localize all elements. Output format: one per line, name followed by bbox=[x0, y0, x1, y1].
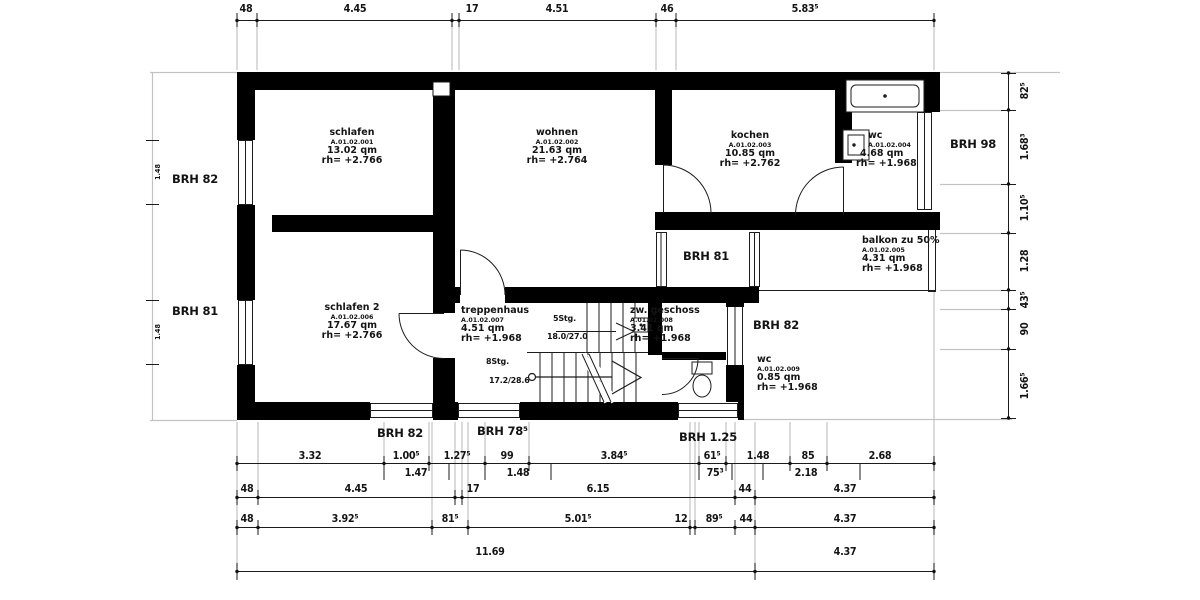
dim-label: 1.48 bbox=[154, 324, 162, 340]
dim-label: 1.48 bbox=[507, 467, 530, 479]
dim-label: 1.68³ bbox=[1019, 134, 1031, 161]
room-label-wc-top: wcA.01.02.004 4.68 qm rh= +1.968 bbox=[868, 131, 917, 170]
dim-label: 82⁵ bbox=[1019, 83, 1031, 100]
dim-label: 48 bbox=[241, 513, 254, 525]
dim-label: 75³ bbox=[707, 467, 724, 479]
stair-ratio-upper: 18.0/27.0 bbox=[547, 332, 588, 341]
dim-label: 90 bbox=[1019, 323, 1031, 336]
room-label-schlafen: schlafenA.01.02.001 13.02 qmrh= +2.766 bbox=[322, 128, 383, 167]
dim-label: 1.47 bbox=[405, 467, 428, 479]
dim-label: 61⁵ bbox=[704, 450, 721, 462]
dim-label: 89⁵ bbox=[706, 513, 723, 525]
dim-label: 17 bbox=[467, 483, 480, 495]
dim-label: 11.69 bbox=[475, 546, 504, 558]
room-label-treppenhaus: treppenhausA.01.02.007 4.51 qmrh= +1.968 bbox=[461, 306, 529, 345]
room-label-wohnen: wohnenA.01.02.002 21.63 qmrh= +2.764 bbox=[527, 128, 588, 167]
dim-label: 4.37 bbox=[834, 513, 857, 525]
dim-label: 4.37 bbox=[834, 546, 857, 558]
dim-label: 5.83⁵ bbox=[792, 3, 819, 15]
dim-label: 85 bbox=[802, 450, 815, 462]
room-label-balkon: balkon zu 50%A.01.02.005 4.31 qmrh= +1.9… bbox=[862, 236, 939, 275]
sill-label-mid-right: BRH 82 bbox=[753, 318, 799, 332]
dim-label: 4.37 bbox=[834, 483, 857, 495]
dim-label: 44 bbox=[739, 483, 752, 495]
stair-steps-lower: 8Stg. bbox=[486, 357, 509, 366]
sill-label-right: BRH 98 bbox=[950, 137, 996, 151]
dim-label: 17 bbox=[466, 3, 479, 15]
dim-label: 43⁵ bbox=[1019, 292, 1031, 309]
dim-label: 12 bbox=[675, 513, 688, 525]
sill-label-left-top: BRH 82 bbox=[172, 172, 218, 186]
sill-label-bottom-left: BRH 82 bbox=[377, 426, 423, 440]
room-label-wc-bottom: wcA.01.02.009 0.85 qmrh= +1.968 bbox=[757, 355, 818, 394]
sill-label-bottom-right: BRH 1.25 bbox=[679, 430, 737, 444]
stair-steps-upper: 5Stg. bbox=[553, 314, 576, 323]
dim-label: 1.48 bbox=[747, 450, 770, 462]
dim-label: 99 bbox=[501, 450, 514, 462]
dim-label: 48 bbox=[240, 3, 253, 15]
dim-label: 1.28 bbox=[1019, 250, 1031, 273]
dim-label: 1.00⁵ bbox=[393, 450, 420, 462]
stair-break-line bbox=[582, 354, 614, 402]
dim-label: 1.27⁵ bbox=[444, 450, 471, 462]
dim-label: 6.15 bbox=[587, 483, 610, 495]
dim-label: 46 bbox=[661, 3, 674, 15]
dim-label: 4.51 bbox=[546, 3, 569, 15]
room-label-kochen: kochenA.01.02.003 10.85 qmrh= +2.762 bbox=[720, 131, 781, 170]
stair-ratio-lower: 17.2/28.6 bbox=[489, 376, 530, 385]
dim-label: 5.01⁵ bbox=[565, 513, 592, 525]
dim-label: 3.92⁵ bbox=[332, 513, 359, 525]
dim-label: 1.48 bbox=[154, 164, 162, 180]
dim-label: 3.32 bbox=[299, 450, 322, 462]
sill-label-left-bottom: BRH 81 bbox=[172, 304, 218, 318]
sill-label-corridor: BRH 81 bbox=[683, 249, 729, 263]
dim-label: 44 bbox=[740, 513, 753, 525]
dim-label: 1.10⁵ bbox=[1019, 195, 1031, 222]
dim-label: 81⁵ bbox=[442, 513, 459, 525]
dim-label: 3.84⁵ bbox=[601, 450, 628, 462]
dim-label: 2.18 bbox=[795, 467, 818, 479]
dim-label: 1.66⁵ bbox=[1019, 373, 1031, 400]
dim-label: 4.45 bbox=[345, 483, 368, 495]
sill-label-bottom-mid: BRH 78⁵ bbox=[477, 424, 528, 438]
dim-label: 48 bbox=[241, 483, 254, 495]
chimney-symbol bbox=[433, 82, 450, 96]
toilet-icon-2 bbox=[692, 362, 712, 397]
bathtub-icon bbox=[846, 80, 924, 112]
dim-label: 2.68 bbox=[869, 450, 892, 462]
room-label-schlafen-2: schlafen 2A.01.02.006 17.67 qmrh= +2.766 bbox=[322, 303, 383, 342]
dim-label: 4.45 bbox=[344, 3, 367, 15]
room-label-zw-geschoss: zw. geschossA.01.02.008 3.41 qmrh= +1.96… bbox=[630, 306, 700, 345]
